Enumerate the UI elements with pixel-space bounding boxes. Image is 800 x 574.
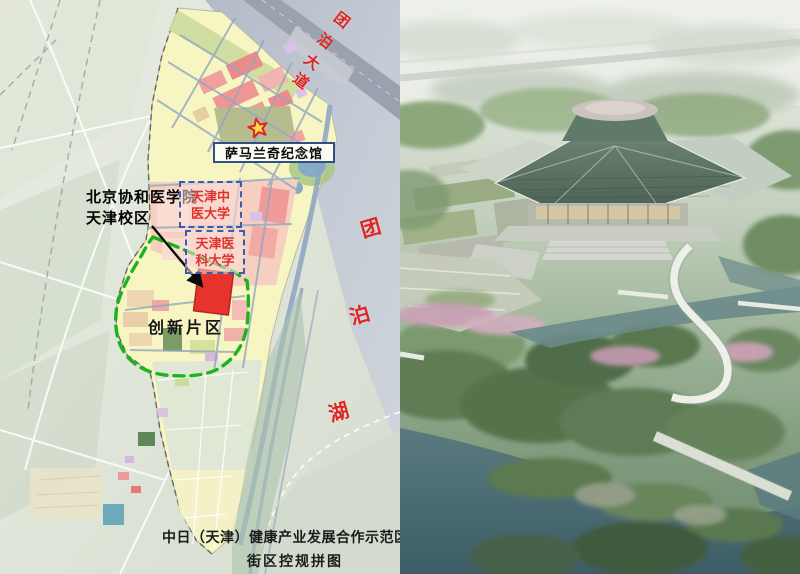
- caption-line2: 街区控规拼图: [162, 551, 402, 571]
- aerial-rendering-graphic: [400, 0, 800, 574]
- composite-image: 团 泊 大 道 团 泊 湖 萨马兰奇纪念馆 北京协和医学院 天津校区 天津中医大…: [0, 0, 800, 574]
- memorial-label-box: 萨马兰奇纪念馆: [213, 142, 335, 163]
- medical-university-box: 天津医科大学: [185, 230, 245, 274]
- planning-map-graphic: [0, 0, 400, 574]
- front-steps: [542, 241, 673, 260]
- memorial-label: 萨马兰奇纪念馆: [225, 143, 323, 162]
- campus-site-parcel: [194, 269, 234, 315]
- tcm-university-box: 天津中医大学: [179, 181, 242, 228]
- map-caption: 中日（天津）健康产业发展合作示范区 街区控规拼图: [162, 527, 402, 571]
- innovation-area-label: 创新片区: [148, 314, 224, 338]
- planning-map-panel: 团 泊 大 道 团 泊 湖 萨马兰奇纪念馆 北京协和医学院 天津校区 天津中医大…: [0, 0, 400, 574]
- tcm-university-label: 天津中医大学: [190, 188, 232, 222]
- building-plinth: [494, 226, 722, 241]
- aerial-rendering-panel: [400, 0, 800, 574]
- medical-university-label: 天津医科大学: [194, 235, 236, 269]
- caption-line1: 中日（天津）健康产业发展合作示范区: [162, 527, 402, 547]
